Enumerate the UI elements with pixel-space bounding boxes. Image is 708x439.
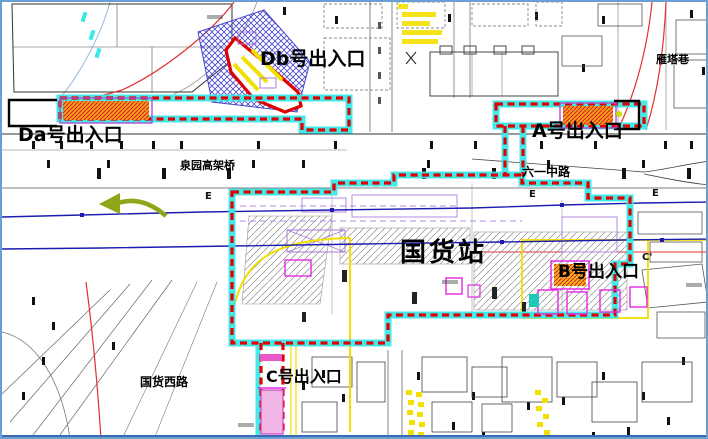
street-label-yanta: 雁塔巷 [656, 54, 689, 65]
section-marker-e-mid: E [529, 190, 536, 200]
da-bracket [9, 100, 57, 126]
coordinate-annotation-marks [398, 4, 442, 44]
bottom-frame-line [2, 435, 708, 439]
street-label-guohuo-west: 国货西路 [140, 376, 188, 388]
section-marker-e-west: E [205, 192, 212, 202]
section-marker-c-prime: C' [642, 253, 652, 263]
road-tick-marks [22, 7, 705, 438]
db-entrance-label: Db号出入口 [260, 50, 365, 69]
street-label-liuyi: 六一中路 [522, 166, 570, 178]
c-entrance-label: C号出入口 [266, 369, 342, 385]
a-entrance-label: A号出入口 [532, 122, 623, 141]
section-marker-e-east: E [652, 189, 659, 199]
da-entrance-label: Da号出入口 [18, 126, 123, 145]
site-plan-map: Db号出入口 Da号出入口 A号出入口 B号出入口 C号出入口 国货站 六一中路… [0, 0, 708, 439]
b-entrance-label: B号出入口 [558, 264, 639, 281]
street-label-viaduct: 泉园高架桥 [180, 160, 235, 171]
station-name-label: 国货站 [400, 240, 487, 266]
